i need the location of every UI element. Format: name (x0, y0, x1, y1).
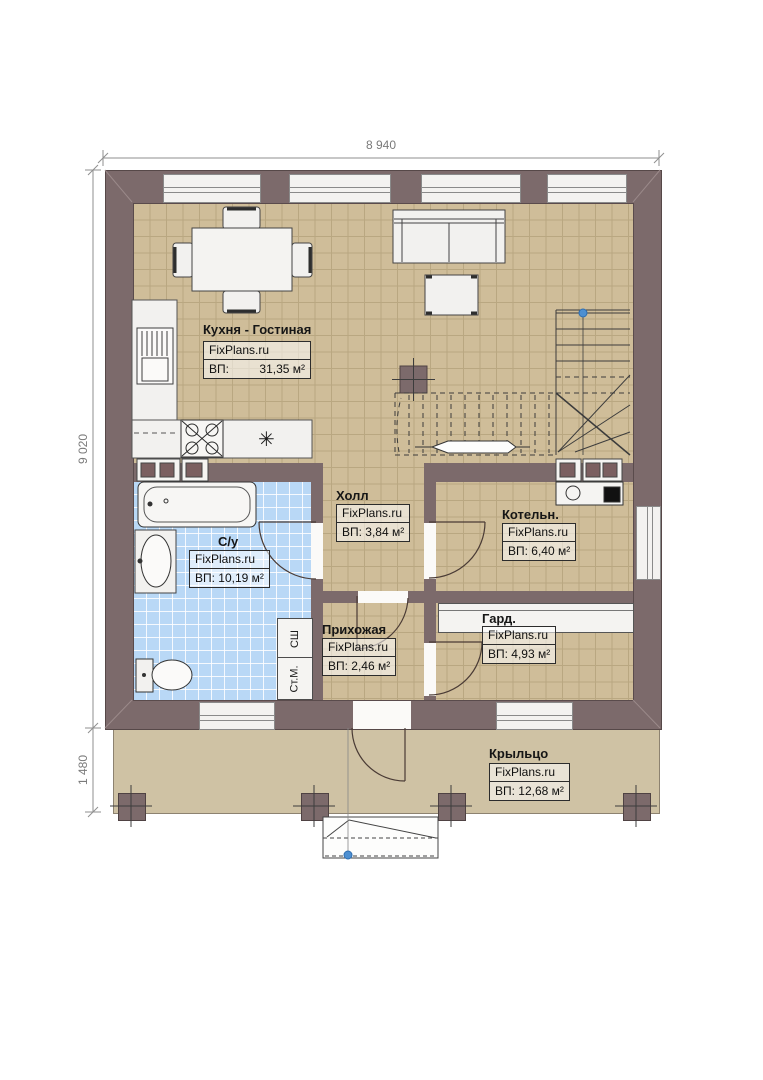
entry-door-opening (353, 701, 411, 729)
porch-column (438, 793, 466, 821)
area-value: ВП: 2,46 м² (323, 657, 395, 675)
window (199, 702, 275, 730)
brand-link: FixPlans.ru (490, 764, 569, 782)
room-name-entry-hall: Прихожая (322, 622, 386, 637)
kitchen-sink-symbol: ✳ (258, 427, 275, 452)
porch-column (118, 793, 146, 821)
room-info-boiler: FixPlans.ru ВП: 6,40 м² (502, 523, 576, 561)
window (421, 174, 521, 203)
dimension-porch: 1 480 (76, 740, 92, 800)
porch-floor (113, 728, 660, 814)
window (163, 174, 261, 203)
window (289, 174, 391, 203)
room-info-bathroom: FixPlans.ru ВП: 10,19 м² (189, 550, 270, 588)
porch-column (301, 793, 329, 821)
area-value: ВП: 12,68 м² (490, 782, 569, 800)
area-label: ВП: (209, 362, 229, 376)
room-name-wardrobe: Гард. (482, 611, 516, 626)
exterior-wall-left (106, 171, 133, 729)
area-value: ВП: 10,19 м² (190, 569, 269, 587)
room-info-kitchen-living: FixPlans.ru ВП: 31,35 м² (203, 341, 311, 379)
room-info-wardrobe: FixPlans.ru ВП: 4,93 м² (482, 626, 556, 664)
area-value: ВП: 3,84 м² (337, 523, 409, 541)
room-name-bathroom: С/у (218, 534, 238, 549)
room-info-porch: FixPlans.ru ВП: 12,68 м² (489, 763, 570, 801)
brand-link: FixPlans.ru (323, 639, 395, 657)
brand-link: FixPlans.ru (503, 524, 575, 542)
porch-column (623, 793, 651, 821)
brand-link: FixPlans.ru (204, 342, 310, 360)
window (547, 174, 627, 203)
dryer-cabinet-label: СШ (289, 629, 301, 647)
washing-machine: Ст.М. (277, 657, 313, 700)
room-name-boiler: Котельн. (502, 507, 559, 522)
window (496, 702, 573, 730)
room-info-entry-hall: FixPlans.ru ВП: 2,46 м² (322, 638, 396, 676)
dimension-height: 9 020 (76, 419, 92, 479)
room-name-hall: Холл (336, 488, 369, 503)
brand-link: FixPlans.ru (483, 627, 555, 645)
room-name-kitchen-living: Кухня - Гостиная (203, 322, 311, 337)
exterior-wall-right (634, 171, 661, 729)
window (636, 506, 661, 580)
washing-machine-label: Ст.М. (289, 665, 301, 692)
area-value: 31,35 м² (259, 362, 305, 376)
area-value: ВП: 6,40 м² (503, 542, 575, 560)
brand-link: FixPlans.ru (337, 505, 409, 523)
dryer-cabinet: СШ (277, 618, 313, 659)
floor-plan-canvas: 8 940 9 020 1 480 Кухня - Гостиная FixPl… (0, 0, 763, 1080)
room-info-hall: FixPlans.ru ВП: 3,84 м² (336, 504, 410, 542)
area-value: ВП: 4,93 м² (483, 645, 555, 663)
dimension-width: 8 940 (340, 138, 422, 152)
room-name-porch: Крыльцо (489, 746, 548, 761)
brand-link: FixPlans.ru (190, 551, 269, 569)
